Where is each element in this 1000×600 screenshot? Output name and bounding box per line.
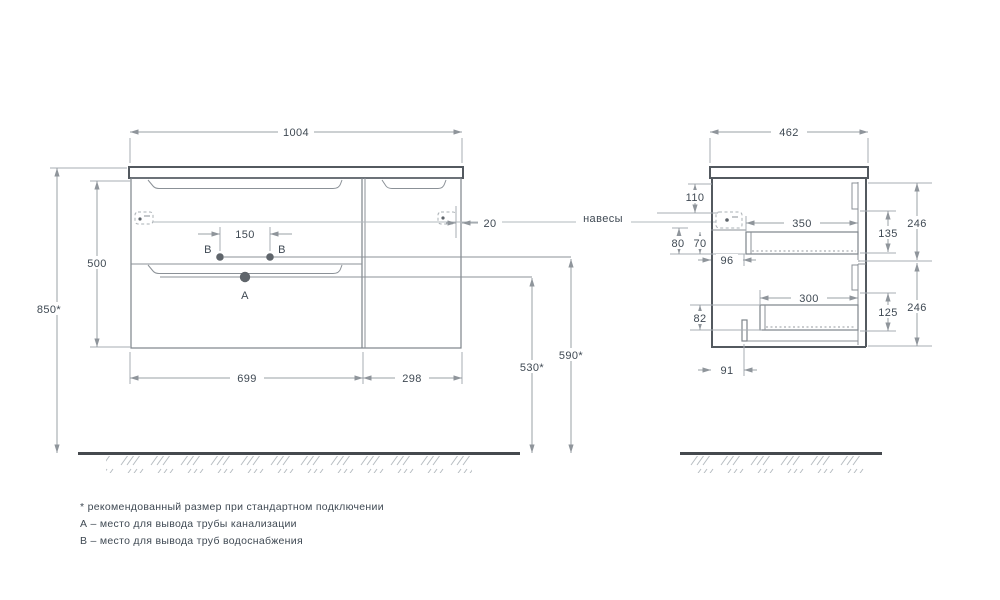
dim-drain-height-label: 530* <box>520 362 545 374</box>
dim-top-drawer-clearance-label: 135 <box>878 228 898 240</box>
front-right-hanger-dot <box>441 216 444 219</box>
hangers-callout: навесы <box>153 211 716 225</box>
side-hanger-dot <box>725 218 729 222</box>
dim-b-spacing-label: 150 <box>235 229 255 241</box>
dim-cabinet-height-label: 500 <box>87 258 107 270</box>
floor-hatch-left <box>106 456 472 473</box>
footnotes: * рекомендованный размер при стандартном… <box>80 501 384 547</box>
floor <box>78 454 882 474</box>
front-cabinet-body <box>131 178 461 348</box>
dim-depth-label: 462 <box>779 127 799 139</box>
front-left-hanger-icon <box>135 212 153 224</box>
dim-top-drawer-depth-label: 350 <box>792 218 812 230</box>
dim-bottom-recess-height-label: 82 <box>693 313 706 325</box>
front-top-handle-recess <box>148 180 342 189</box>
side-bottom-handle-recess <box>852 265 858 290</box>
point-b-left-label: B <box>204 244 212 256</box>
dim-hanger-offset-b-label: 70 <box>693 238 706 250</box>
footnote-point-b: В – место для вывода труб водоснабжения <box>80 535 303 547</box>
dim-door-section-label: 298 <box>402 373 422 385</box>
technical-drawing-page: B B A навесы 1004 850* 500 150 <box>0 0 1000 600</box>
side-hanger-icon <box>716 212 742 228</box>
dim-hanger-offset-a-label: 80 <box>671 238 684 250</box>
floor-hatch-right <box>688 456 870 473</box>
dim-top-front-height-label: 246 <box>907 218 927 230</box>
side-countertop <box>710 167 868 178</box>
point-b-left-hole <box>216 253 224 261</box>
dim-front-width-label: 1004 <box>283 127 309 139</box>
drawing-canvas: B B A навесы 1004 850* 500 150 <box>0 0 1000 600</box>
dim-bottom-drawer-clearance-label: 125 <box>878 307 898 319</box>
point-b-right-label: B <box>278 244 286 256</box>
dim-drawer-section-label: 699 <box>237 373 257 385</box>
side-bottom-drawer-box <box>760 305 858 330</box>
front-door-handle-recess <box>382 180 446 189</box>
front-view: B B A <box>129 167 571 348</box>
point-a-label: A <box>241 290 249 302</box>
side-top-handle-recess <box>852 183 858 209</box>
dim-hanger-inset-label: 96 <box>720 255 733 267</box>
point-b-right-hole <box>266 253 274 261</box>
front-countertop <box>129 167 463 178</box>
front-left-hanger-dot <box>138 217 141 220</box>
dim-counter-to-hanger-label: 110 <box>686 192 705 204</box>
point-a-hole <box>240 272 250 282</box>
dim-bottom-drawer-depth-label: 300 <box>799 293 819 305</box>
hangers-callout-label: навесы <box>583 213 623 225</box>
dim-install-height-label: 850* <box>37 304 62 316</box>
dim-bottom-front-height-label: 246 <box>907 302 927 314</box>
dim-supply-height-label: 590* <box>559 350 584 362</box>
dim-bottom-recess-depth-label: 91 <box>720 365 733 377</box>
footnote-recommended-size: * рекомендованный размер при стандартном… <box>80 501 384 513</box>
footnote-point-a: А – место для вывода трубы канализации <box>80 518 297 530</box>
dim-hanger-edge-gap-label: 20 <box>483 218 496 230</box>
